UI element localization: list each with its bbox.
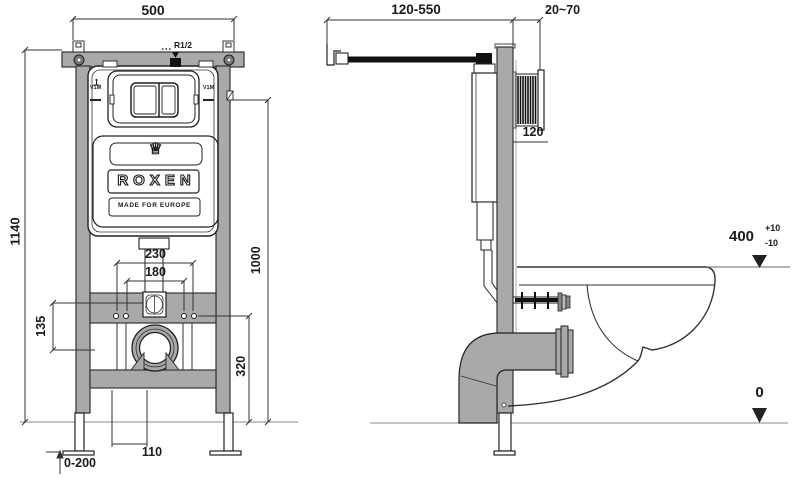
dim-leg-adjust-range: 0-200 (64, 457, 96, 470)
dim-bolt-spacing-inner: 180 (135, 266, 176, 279)
dim-rim-height: 400 (729, 229, 754, 244)
brand-name: ROXEN (109, 173, 199, 188)
bowl-inlet-connector (513, 292, 570, 311)
rim-level-marker (752, 255, 767, 268)
dim-frame-width: 500 (113, 3, 193, 17)
dim-panel-level: 1000 (250, 237, 263, 283)
support-rod (327, 44, 492, 66)
valve-label-left: V1M (88, 86, 103, 92)
flush-plate (108, 71, 199, 127)
crown-icon: ♕ (135, 142, 176, 158)
lower-crossbar (90, 370, 216, 388)
dim-inlet-drain-offset: 135 (35, 304, 48, 348)
dim-rim-tol-plus: +10 (765, 224, 780, 233)
label-inlet-thread: R1/2 (174, 41, 192, 50)
dim-frame-depth: 120 (517, 126, 549, 139)
dim-bolt-spacing-outer: 230 (135, 248, 176, 261)
drain-elbow (459, 326, 573, 423)
brand-tagline: MADE FOR EUROPE (110, 203, 199, 210)
valve-label-right: V1M (201, 86, 216, 92)
drain-socket (131, 325, 179, 371)
dim-drain-level: 320 (235, 344, 248, 388)
dim-rod-range: 120-550 (376, 3, 456, 17)
top-rail (62, 52, 244, 67)
dim-floor-level: 0 (751, 385, 768, 400)
drawing-canvas (0, 0, 800, 484)
installation-frame-drawing: 500 1140 R1/2 V1M V1M ♕ ROXEN MADE FOR E… (0, 0, 800, 484)
floor-level-marker (752, 408, 767, 423)
side-view (324, 17, 790, 455)
dim-outlet-width: 110 (134, 446, 170, 459)
wall-brackets (73, 41, 234, 52)
inlet-elbow-fitting (143, 292, 166, 317)
dim-rim-tol-minus: -10 (765, 239, 778, 248)
dim-frame-height: 1140 (9, 209, 22, 255)
dim-wall-finish-range: 20~70 (545, 4, 580, 17)
